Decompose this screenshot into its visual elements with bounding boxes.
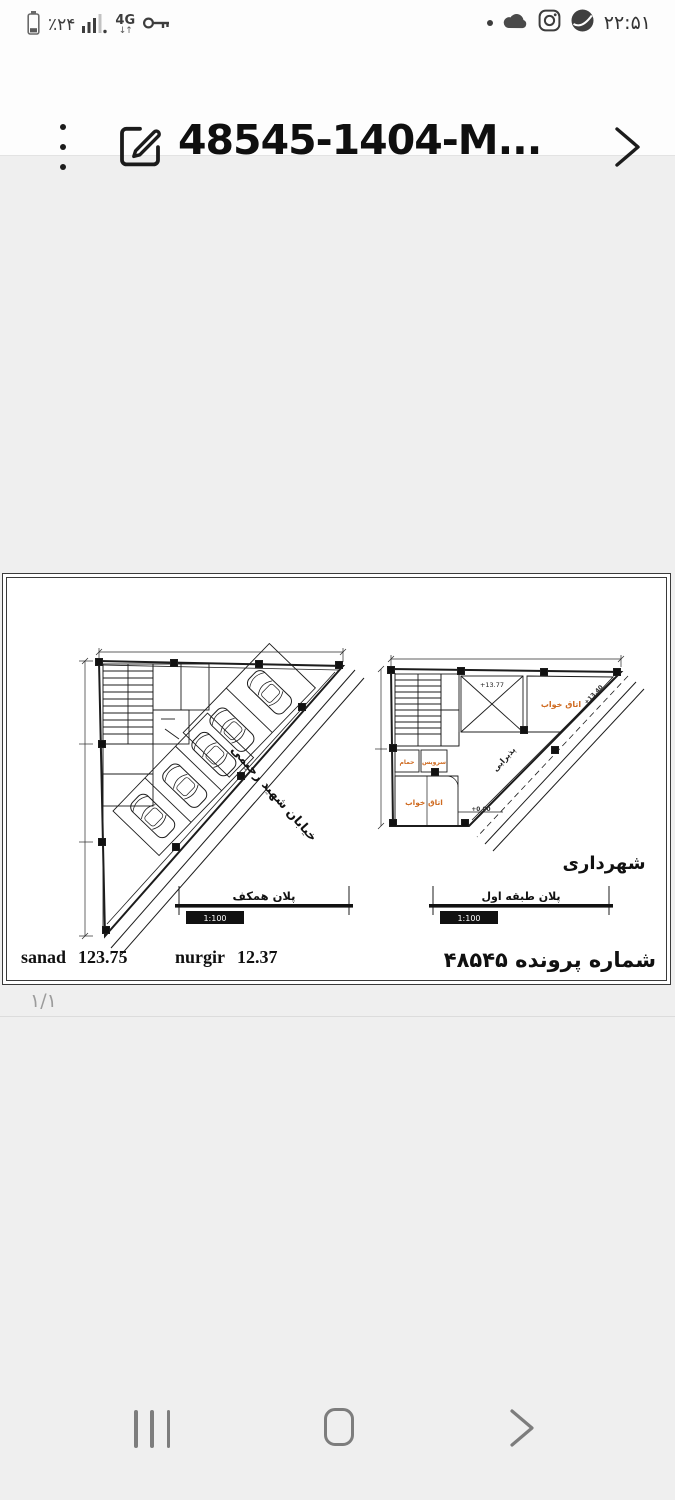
network-arrows-icon: ↓↑ <box>119 27 132 36</box>
chevron-right-icon <box>613 126 643 168</box>
room-label-living: پذیرایی <box>491 745 517 773</box>
right-plan-title: پلان طبقه اول <box>481 890 560 903</box>
menu-button[interactable] <box>56 124 70 170</box>
edit-button[interactable] <box>116 122 164 170</box>
back-button[interactable] <box>613 126 643 168</box>
nurgir-value: nurgir12.37 <box>175 947 278 968</box>
left-plan-title: پلان همکف <box>233 889 296 903</box>
municipality-label: شهرداری <box>562 853 645 874</box>
room-label-top-right: اتاق خواب <box>541 700 582 709</box>
instagram-icon <box>538 9 561 36</box>
planet-app-icon <box>570 8 595 37</box>
app-header: 48545-1404-M... <box>0 48 675 148</box>
left-plan-ground-floor: خیابان شهید رحیمی <box>79 643 364 956</box>
elevation-road: +13.40 <box>583 684 605 706</box>
file-number: شماره پرونده ۴۸۵۴۵ <box>444 948 656 972</box>
elevation-void: +13.77 <box>480 681 504 689</box>
page-indicator: ۱/۱ <box>30 990 57 1012</box>
notification-dot-icon <box>487 20 493 26</box>
room-label-bath: حمام <box>400 759 415 766</box>
sanad-value: sanad123.75 <box>21 947 128 968</box>
page-title: 48545-1404-M... <box>178 116 578 164</box>
home-button[interactable] <box>324 1408 354 1446</box>
staircase-right <box>395 674 459 746</box>
document-page[interactable]: خیابان شهید رحیمی پلان همکف 1:100 <box>2 573 671 985</box>
floor-plan-drawing: خیابان شهید رحیمی پلان همکف 1:100 <box>3 574 672 986</box>
staircase <box>103 664 153 806</box>
network-type-indicator: 4G ↓↑ <box>115 14 135 36</box>
left-plan-scale-bar: پلان همکف 1:100 <box>175 886 353 924</box>
left-plan-scale-stamp: 1:100 <box>203 914 226 923</box>
recents-button[interactable] <box>134 1410 170 1448</box>
street-name-label: خیابان شهید رحیمی <box>228 742 321 844</box>
recents-icon <box>134 1410 138 1448</box>
top-zone: ٪۲۴ 4G ↓↑ <box>0 0 675 156</box>
nav-back-button[interactable] <box>508 1408 536 1448</box>
nav-chevron-icon <box>508 1408 536 1448</box>
content-divider <box>0 1016 675 1017</box>
vpn-key-icon <box>142 13 172 37</box>
right-plan-scale-stamp: 1:100 <box>457 914 480 923</box>
right-plan-typical-floor: +13.77 <box>375 655 646 874</box>
status-right-cluster: ۲۲:۵۱ <box>487 8 651 37</box>
right-plan-scale-bar: پلان طبقه اول 1:100 <box>429 886 613 924</box>
status-bar: ٪۲۴ 4G ↓↑ <box>0 0 675 48</box>
battery-percent: ٪۲۴ <box>48 15 75 35</box>
signal-icon <box>82 11 108 39</box>
status-left-cluster: ٪۲۴ 4G ↓↑ <box>26 10 172 40</box>
edit-pencil-icon <box>116 122 164 170</box>
room-label-bedroom: اتاق خواب <box>405 798 443 807</box>
elevation-ground: +0.00 <box>471 807 490 813</box>
cloud-icon <box>502 11 529 35</box>
navigation-bar <box>0 1380 675 1500</box>
battery-icon <box>26 10 41 40</box>
room-label-wc: سرویس <box>422 759 446 766</box>
clock-time: ۲۲:۵۱ <box>604 12 651 34</box>
